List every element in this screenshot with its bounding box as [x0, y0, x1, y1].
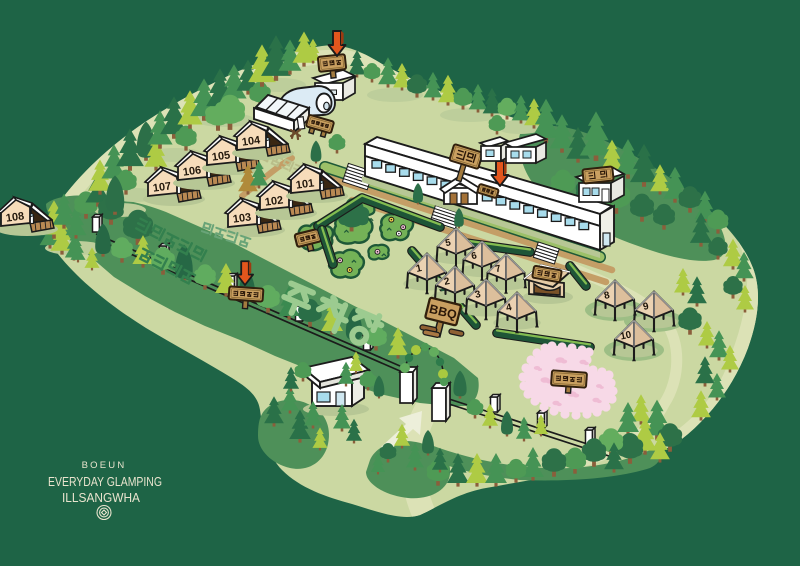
svg-text:106: 106 — [182, 164, 202, 178]
svg-text:103: 103 — [232, 211, 252, 225]
svg-text:107: 107 — [152, 180, 172, 194]
svg-text:102: 102 — [264, 194, 284, 208]
svg-text:EVERYDAY GLAMPING: EVERYDAY GLAMPING — [48, 474, 162, 489]
svg-text:101: 101 — [295, 177, 315, 191]
svg-text:BOEUN: BOEUN — [82, 460, 127, 471]
svg-text:ILLSANGWHA: ILLSANGWHA — [62, 490, 140, 505]
svg-text:105: 105 — [211, 149, 231, 163]
svg-text:108: 108 — [5, 210, 25, 224]
